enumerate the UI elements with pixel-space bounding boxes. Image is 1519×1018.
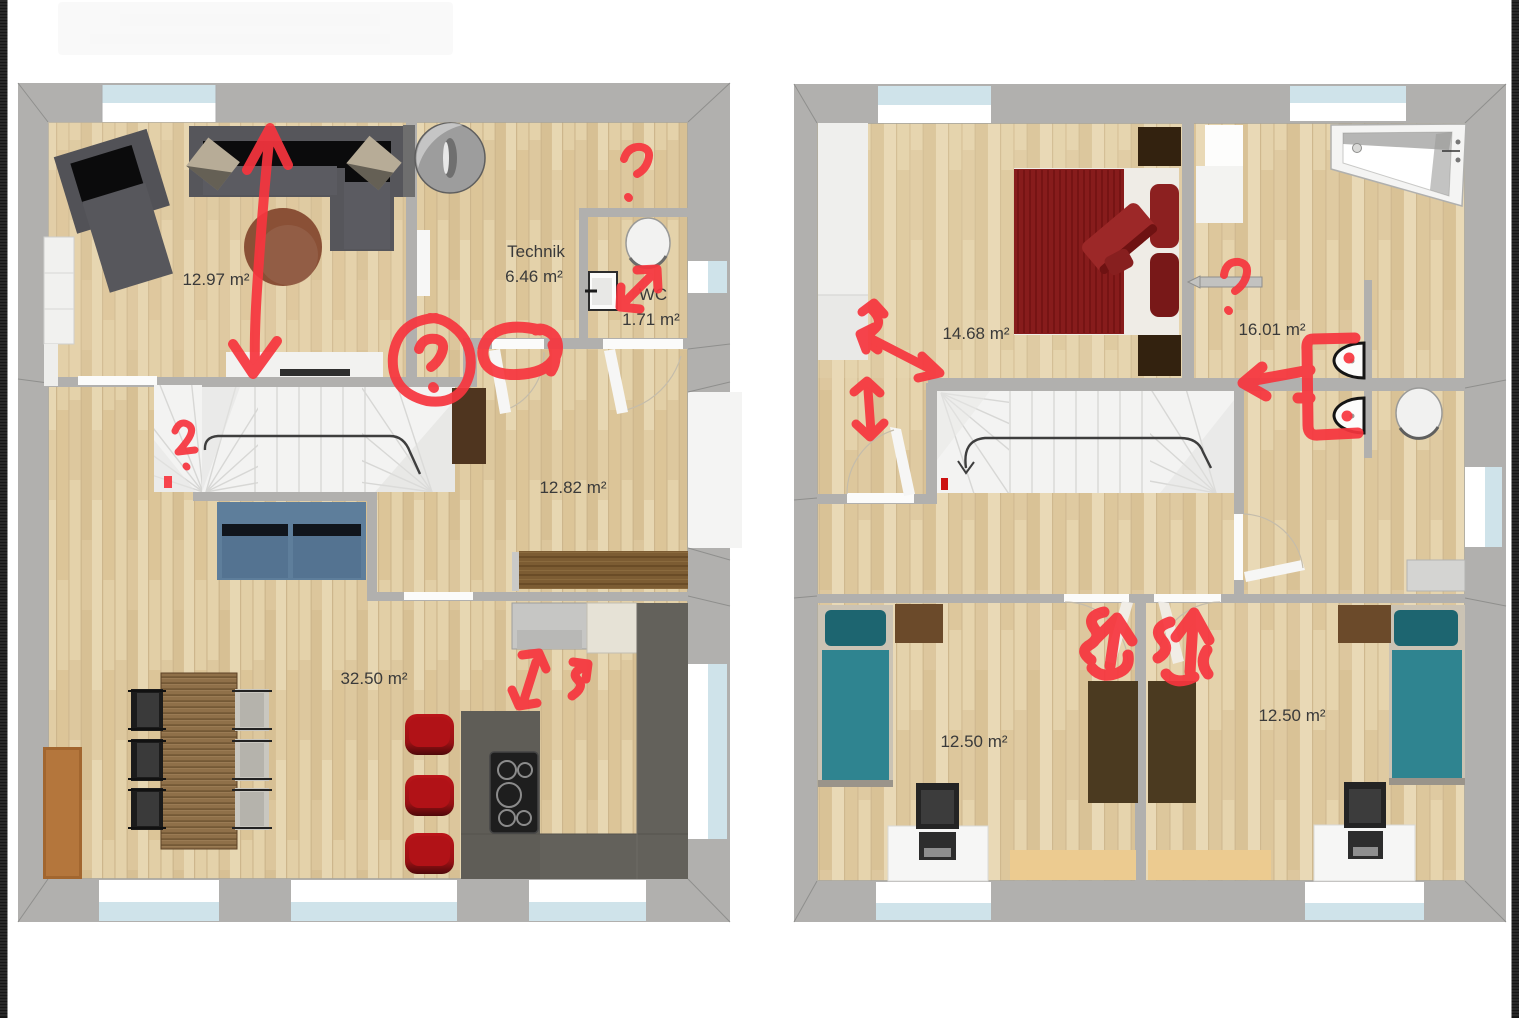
svg-text:16.01 m²: 16.01 m²: [1238, 320, 1305, 339]
svg-text:Technik: Technik: [507, 242, 565, 261]
svg-text:12.97 m²: 12.97 m²: [182, 270, 249, 289]
svg-text:14.68 m²: 14.68 m²: [942, 324, 1009, 343]
svg-text:12.50 m²: 12.50 m²: [940, 732, 1007, 751]
svg-text:1.71 m²: 1.71 m²: [622, 310, 680, 329]
svg-text:32.50 m²: 32.50 m²: [340, 669, 407, 688]
svg-text:6.46 m²: 6.46 m²: [505, 267, 563, 286]
svg-text:12.82 m²: 12.82 m²: [539, 478, 606, 497]
svg-text:12.50 m²: 12.50 m²: [1258, 706, 1325, 725]
